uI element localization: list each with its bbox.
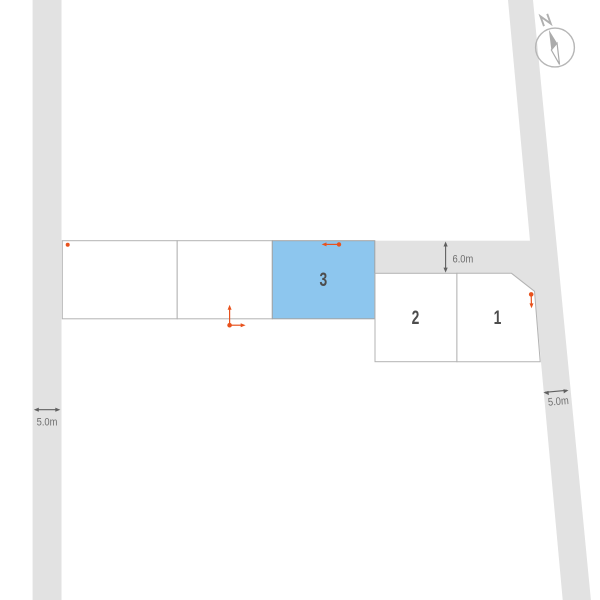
svg-text:1: 1 <box>494 307 502 329</box>
svg-text:5.0m: 5.0m <box>548 395 570 409</box>
svg-text:2: 2 <box>412 307 420 329</box>
svg-text:3: 3 <box>319 269 327 291</box>
svg-text:6.0m: 6.0m <box>453 254 474 266</box>
svg-text:5.0m: 5.0m <box>37 417 58 429</box>
